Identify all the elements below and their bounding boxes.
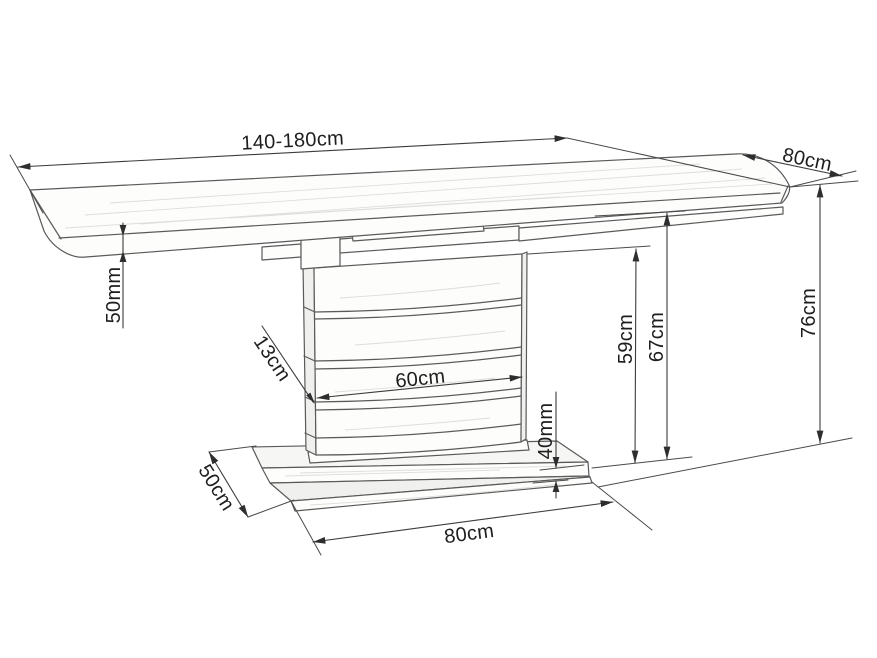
rail-left: [262, 244, 301, 260]
table-structure: [30, 154, 790, 511]
pedestal-column: [303, 252, 529, 463]
dim-label-column-thickness: 13cm: [249, 332, 295, 386]
dim-label-base-depth: 50cm: [193, 461, 238, 515]
dim-label-column-height: 59cm: [615, 314, 637, 364]
column-neck: [301, 237, 340, 269]
dim-label-top-depth: 80cm: [780, 144, 834, 176]
dim-label-underframe-height: 67cm: [646, 312, 668, 362]
table-dimension-drawing: 140-180cm 80cm 76cm 67cm 59cm 50mm 13cm …: [0, 0, 877, 658]
dim-label-top-thickness: 50mm: [103, 267, 125, 324]
column-right-side-face: [521, 252, 527, 442]
dim-label-overall-height: 76cm: [798, 288, 820, 338]
technical-drawing-page: 140-180cm 80cm 76cm 67cm 59cm 50mm 13cm …: [0, 0, 877, 658]
dim-label-base-thickness: 40mm: [535, 403, 557, 460]
